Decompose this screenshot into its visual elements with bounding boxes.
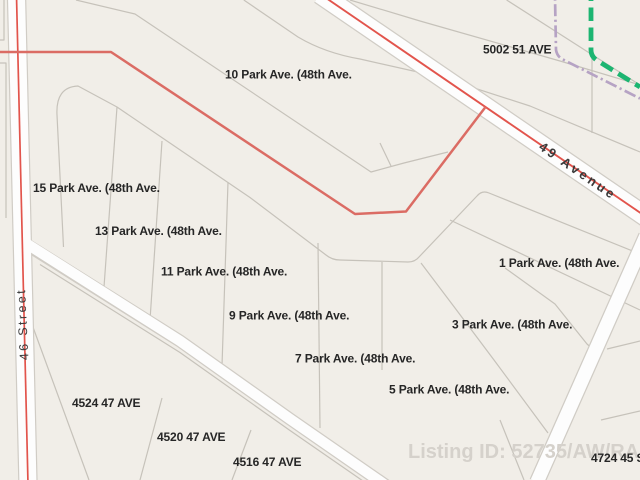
svg-text:5002 51 AVE: 5002 51 AVE: [483, 43, 552, 57]
svg-text:4520 47 AVE: 4520 47 AVE: [157, 430, 226, 444]
svg-text:10 Park Ave. (48th Ave.: 10 Park Ave. (48th Ave.: [225, 68, 352, 82]
svg-text:4516 47 AVE: 4516 47 AVE: [233, 455, 302, 469]
svg-text:4524 47 AVE: 4524 47 AVE: [72, 396, 141, 410]
svg-text:1 Park Ave. (48th Ave.: 1 Park Ave. (48th Ave.: [499, 256, 619, 270]
svg-text:11 Park Ave. (48th Ave.: 11 Park Ave. (48th Ave.: [161, 264, 287, 278]
svg-text:15 Park Ave. (48th Ave.: 15 Park Ave. (48th Ave.: [33, 181, 160, 195]
svg-text:3 Park Ave. (48th Ave.: 3 Park Ave. (48th Ave.: [452, 318, 572, 332]
svg-text:9 Park Ave. (48th Ave.: 9 Park Ave. (48th Ave.: [229, 309, 349, 323]
svg-text:7 Park Ave. (48th Ave.: 7 Park Ave. (48th Ave.: [295, 352, 415, 366]
svg-text:5 Park Ave. (48th Ave.: 5 Park Ave. (48th Ave.: [389, 383, 509, 397]
svg-text:13 Park Ave. (48th Ave.: 13 Park Ave. (48th Ave.: [95, 224, 222, 238]
svg-text:4724 45 ST: 4724 45 ST: [591, 451, 640, 465]
